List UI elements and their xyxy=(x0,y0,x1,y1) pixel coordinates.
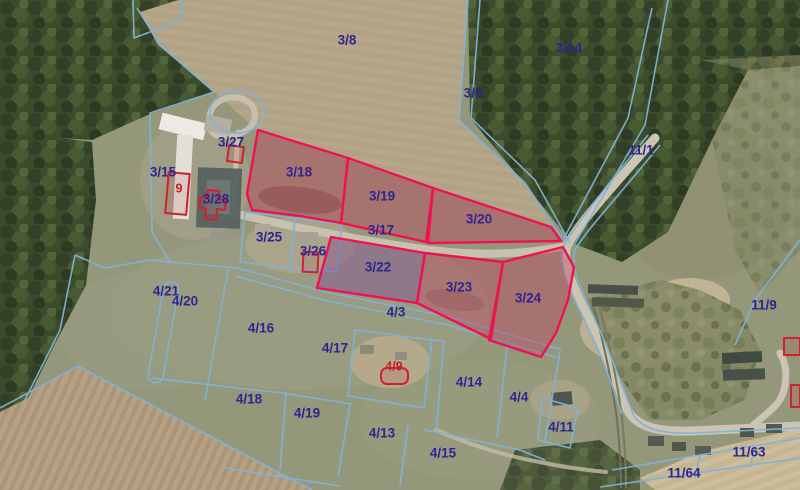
parcel-label-3/25: 3/25 xyxy=(256,230,283,245)
parcel-label-3/23: 3/23 xyxy=(446,280,473,295)
parcel-label-4/15: 4/15 xyxy=(430,446,457,461)
parcel-label-4/17: 4/17 xyxy=(322,341,348,356)
parcel-label-4/14: 4/14 xyxy=(456,375,483,390)
parcel-label-3/17: 3/17 xyxy=(368,223,394,238)
parcel-label-3/22: 3/22 xyxy=(365,260,391,275)
map-canvas[interactable]: 3/83/93/1411/13/153/273/283/183/193/173/… xyxy=(0,0,800,490)
parcel-label-11/1: 11/1 xyxy=(628,143,654,158)
parcel-label-3/8: 3/8 xyxy=(338,33,357,48)
parcel-label-4/4: 4/4 xyxy=(510,390,529,405)
parcel-label-3/9: 3/9 xyxy=(464,86,483,101)
parcel-label-3/20: 3/20 xyxy=(466,212,492,227)
parcel-label-4/13: 4/13 xyxy=(369,426,396,441)
parcel-label-11/64: 11/64 xyxy=(667,466,701,481)
building-label-9: 9 xyxy=(176,182,183,196)
parcel-label-3/14: 3/14 xyxy=(556,41,583,56)
parcel-label-3/24: 3/24 xyxy=(515,291,542,306)
cadastral-map-svg[interactable]: 3/83/93/1411/13/153/273/283/183/193/173/… xyxy=(0,0,800,490)
parcel-label-11/63: 11/63 xyxy=(732,445,766,460)
parcel-label-4/18: 4/18 xyxy=(236,392,263,407)
building-label-4/9: 4/9 xyxy=(385,360,402,374)
parcel-label-11/9: 11/9 xyxy=(751,298,777,313)
parcel-label-4/19: 4/19 xyxy=(294,406,320,421)
parcel-label-3/18: 3/18 xyxy=(286,165,313,180)
parcel-label-3/26: 3/26 xyxy=(300,244,327,259)
parcel-label-4/11: 4/11 xyxy=(548,420,574,435)
parcel-label-3/28: 3/28 xyxy=(203,192,230,207)
parcel-label-4/20: 4/20 xyxy=(172,294,198,309)
parcel-label-3/15: 3/15 xyxy=(150,165,177,180)
parcel-label-4/3: 4/3 xyxy=(387,305,406,320)
parcel-label-3/19: 3/19 xyxy=(369,189,395,204)
parcel-label-4/16: 4/16 xyxy=(248,321,275,336)
parcel-label-3/27: 3/27 xyxy=(218,135,244,150)
